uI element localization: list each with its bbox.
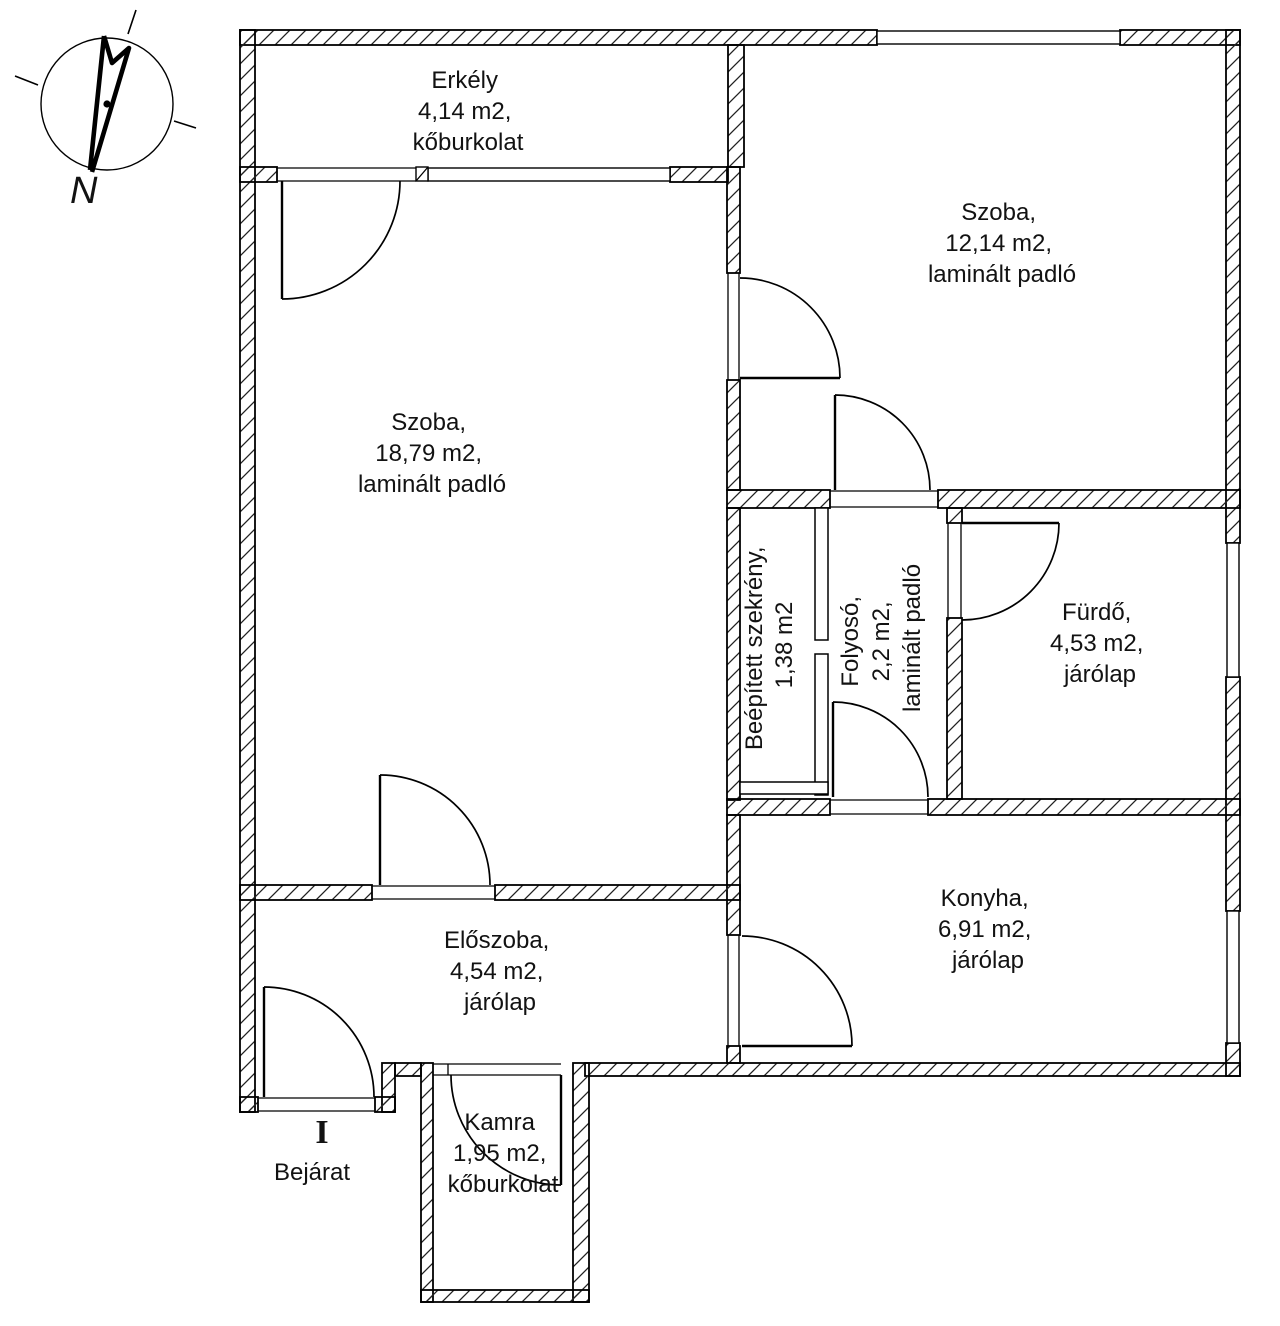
- door-threshold: [372, 886, 495, 899]
- door-threshold: [728, 935, 739, 1046]
- entrance-threshold-icon: I: [315, 1114, 328, 1151]
- wall-segment: [240, 885, 372, 900]
- wall-segment: [670, 167, 728, 182]
- wall-segment: [1226, 30, 1240, 543]
- window: [877, 31, 1120, 44]
- door-corridor-to-room: [835, 395, 930, 490]
- wall-segment: [240, 30, 877, 45]
- wall-segment: [727, 799, 830, 815]
- room-label-konyha: Konyha, 6,91 m2, járólap: [938, 885, 1038, 974]
- floor-plan-page: N: [0, 0, 1280, 1326]
- room-label-szoba-nagy: Szoba, 18,79 m2, laminált padló: [358, 409, 506, 498]
- wall-segment: [1120, 30, 1240, 45]
- window: [428, 168, 670, 181]
- doors: [264, 181, 1059, 1185]
- wall-segment: [585, 1063, 1240, 1076]
- compass-tick-marks: [15, 10, 196, 128]
- room-label-szoba-kis: Szoba, 12,14 m2, laminált padló: [928, 199, 1076, 288]
- floor-plan: N: [0, 0, 1280, 1326]
- room-label-erkely: Erkély 4,14 m2, kőburkolat: [413, 67, 524, 156]
- door-threshold: [433, 1064, 561, 1075]
- wall-segment: [240, 167, 277, 182]
- room-label-kamra: Kamra 1,95 m2, kőburkolat: [448, 1109, 559, 1198]
- wall-segment: [421, 1290, 589, 1302]
- door-corridor: [833, 702, 928, 797]
- wall-segment: [928, 799, 1240, 815]
- door-balcony: [282, 181, 400, 299]
- entrance-label: Bejárat: [274, 1159, 350, 1186]
- wall-segment: [727, 815, 740, 935]
- entrance: I Bejárat: [274, 1114, 350, 1186]
- compass-center-dot: [103, 100, 110, 107]
- wall-segment: [947, 508, 962, 523]
- closet-partition-wall: [815, 654, 828, 795]
- wall-segment: [573, 1063, 589, 1302]
- door-bathroom: [962, 523, 1059, 620]
- door-threshold: [830, 800, 928, 814]
- wall-segment: [421, 1063, 433, 1302]
- door-threshold: [277, 168, 416, 181]
- wall-segment: [395, 1063, 421, 1076]
- door-entrance: [264, 987, 374, 1097]
- door-room-to-room: [740, 278, 840, 378]
- room-label-eloszoba: Előszoba, 4,54 m2, járólap: [444, 927, 556, 1016]
- door-threshold: [830, 491, 938, 507]
- wall-segment: [240, 30, 255, 1112]
- wall-segment: [938, 490, 1240, 508]
- wall-segment: [727, 508, 740, 800]
- window: [1227, 911, 1239, 1043]
- room-labels: Erkély 4,14 m2, kőburkolat Szoba, 18,79 …: [358, 67, 1150, 1198]
- compass-north-indicator: N: [15, 10, 196, 212]
- room-label-folyoso: Folyosó, 2,2 m2, laminált padló: [837, 564, 926, 712]
- wall-segment: [1226, 677, 1240, 911]
- wall-segment: [727, 167, 740, 273]
- door-threshold: [948, 523, 961, 618]
- wall-segment: [727, 380, 740, 490]
- door-threshold: [258, 1098, 375, 1111]
- wall-segment: [727, 490, 830, 508]
- door-threshold: [728, 273, 739, 380]
- room-label-szekreny: Beépített szekrény, 1,38 m2: [741, 540, 798, 750]
- door-kitchen: [742, 936, 852, 1046]
- wall-segment: [947, 618, 962, 799]
- compass-north-label: N: [70, 170, 98, 212]
- wall-segment: [727, 1046, 740, 1063]
- wall-segment: [375, 1097, 395, 1112]
- closet-partition-wall: [815, 508, 828, 640]
- door-room-to-hall: [380, 775, 490, 885]
- wall-segment: [495, 885, 740, 900]
- room-label-furdo: Fürdő, 4,53 m2, járólap: [1050, 599, 1150, 688]
- wall-segment: [240, 1097, 258, 1112]
- window: [1227, 543, 1239, 677]
- wall-segment: [728, 45, 744, 167]
- closet-bottom-wall: [740, 782, 828, 794]
